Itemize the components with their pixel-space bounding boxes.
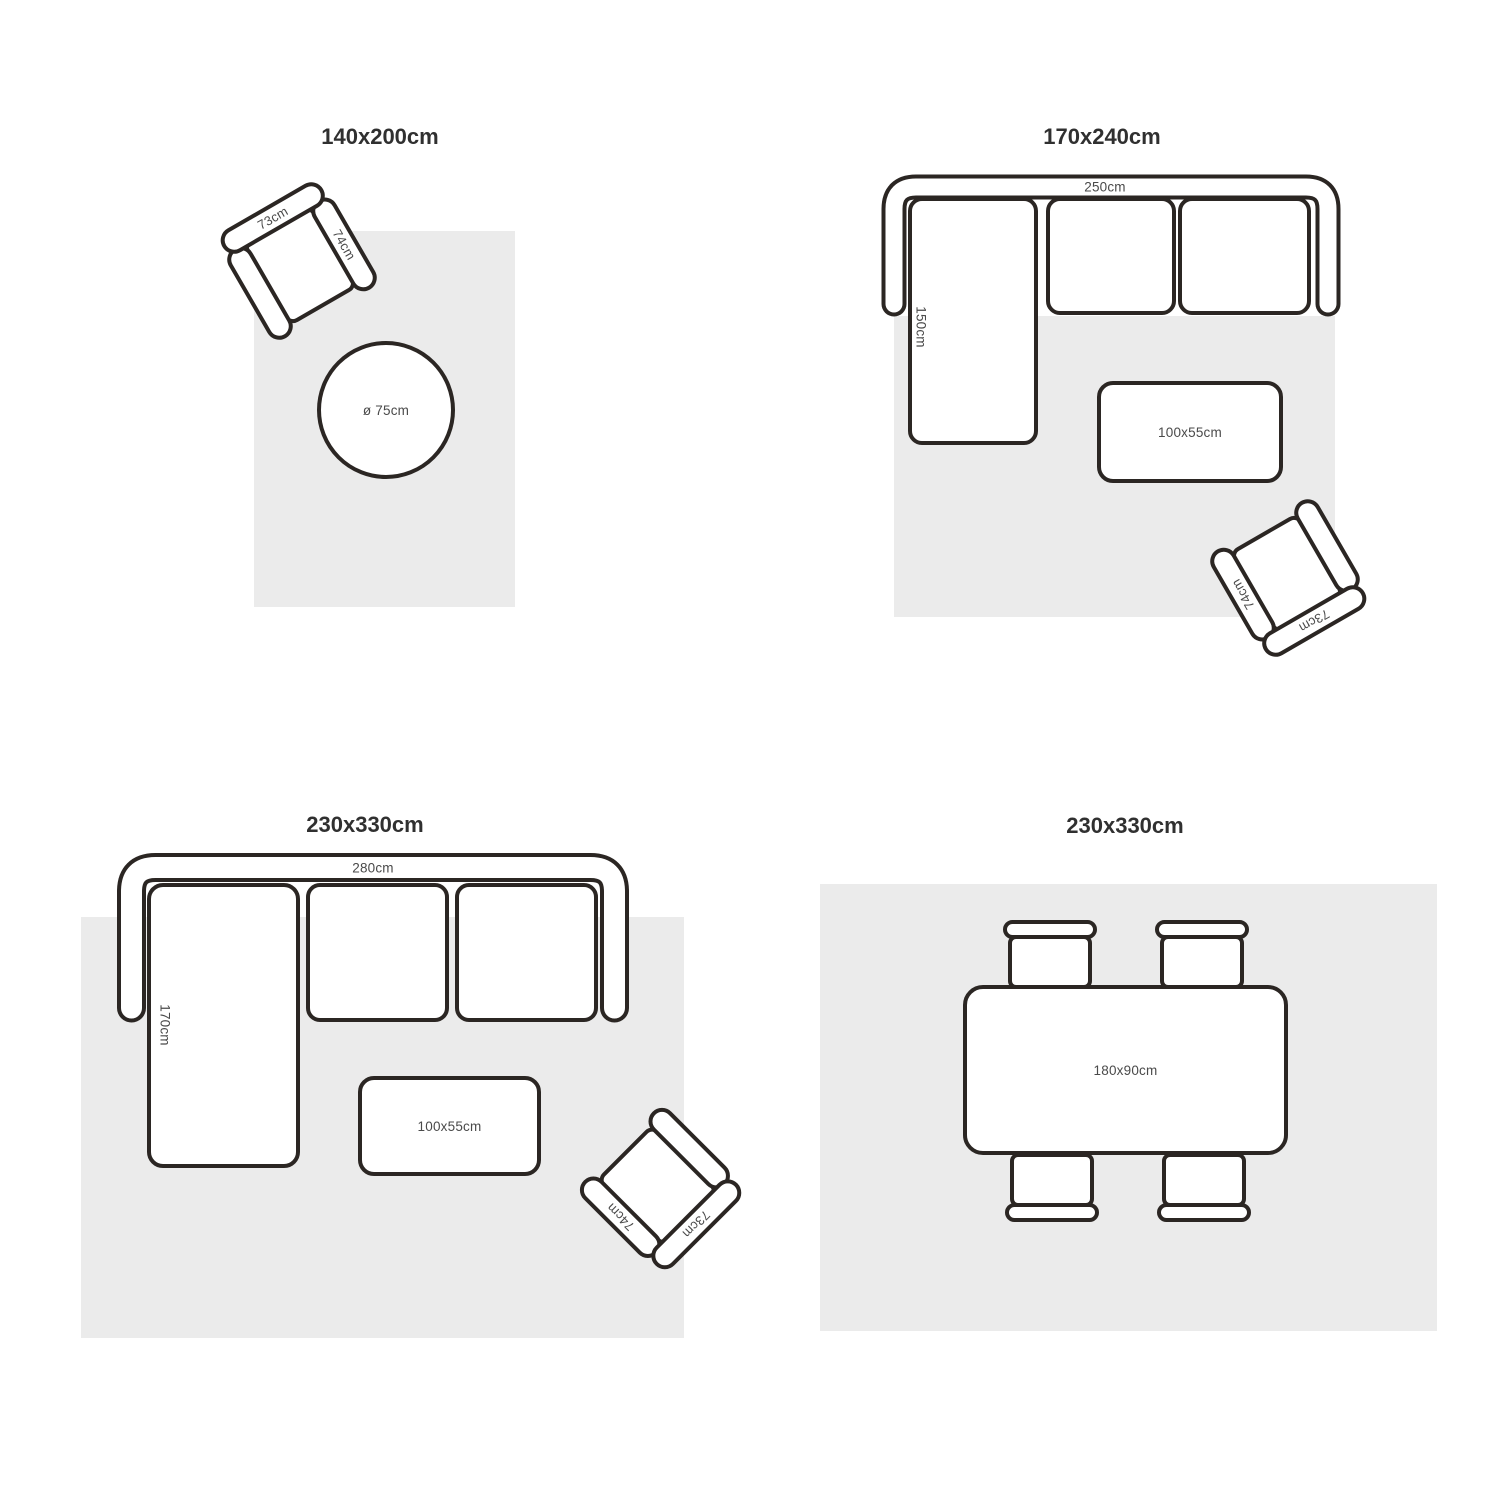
chair-back — [1157, 1203, 1251, 1222]
chair-seat — [1008, 935, 1092, 989]
chair-seat — [1160, 935, 1244, 989]
coffee-table-size-label: 100x55cm — [1158, 425, 1222, 440]
sofa-chaise-depth-label: 170cm — [158, 1004, 173, 1046]
chair-back — [1155, 920, 1249, 939]
dining-chair-top-right — [1155, 920, 1249, 989]
chair-back — [1003, 920, 1097, 939]
coffee-table: 100x55cm — [1097, 381, 1283, 483]
sofa-seat-cushion — [306, 883, 449, 1022]
sofa-seat-cushion — [455, 883, 598, 1022]
sofa-width-label: 280cm — [352, 861, 394, 876]
size-title-3: 230x330cm — [306, 812, 423, 838]
size-title-1: 140x200cm — [321, 124, 438, 150]
chair-back — [1005, 1203, 1099, 1222]
sofa-width-label: 250cm — [1084, 180, 1126, 195]
round-side-table: ø 75cm — [317, 341, 455, 479]
coffee-table: 100x55cm — [358, 1076, 541, 1176]
dining-chair-bottom-right — [1157, 1153, 1251, 1222]
sofa-seat-cushion — [1178, 197, 1311, 315]
sofa-chaise-depth-label: 150cm — [914, 306, 929, 348]
chair-seat — [1162, 1153, 1246, 1207]
size-title-2: 170x240cm — [1043, 124, 1160, 150]
coffee-table-size-label: 100x55cm — [418, 1119, 482, 1134]
sofa-seat-cushion — [1046, 197, 1176, 315]
rug-size-guide: 140x200cm ø 75cm 74cm 73cm 170x240cm 250… — [0, 0, 1500, 1500]
dining-table: 180x90cm — [963, 985, 1288, 1155]
round-table-diameter-label: ø 75cm — [363, 403, 409, 418]
size-title-4: 230x330cm — [1066, 813, 1183, 839]
dining-chair-top-left — [1003, 920, 1097, 989]
dining-chair-bottom-left — [1005, 1153, 1099, 1222]
dining-table-size-label: 180x90cm — [1094, 1063, 1158, 1078]
chair-seat — [1010, 1153, 1094, 1207]
